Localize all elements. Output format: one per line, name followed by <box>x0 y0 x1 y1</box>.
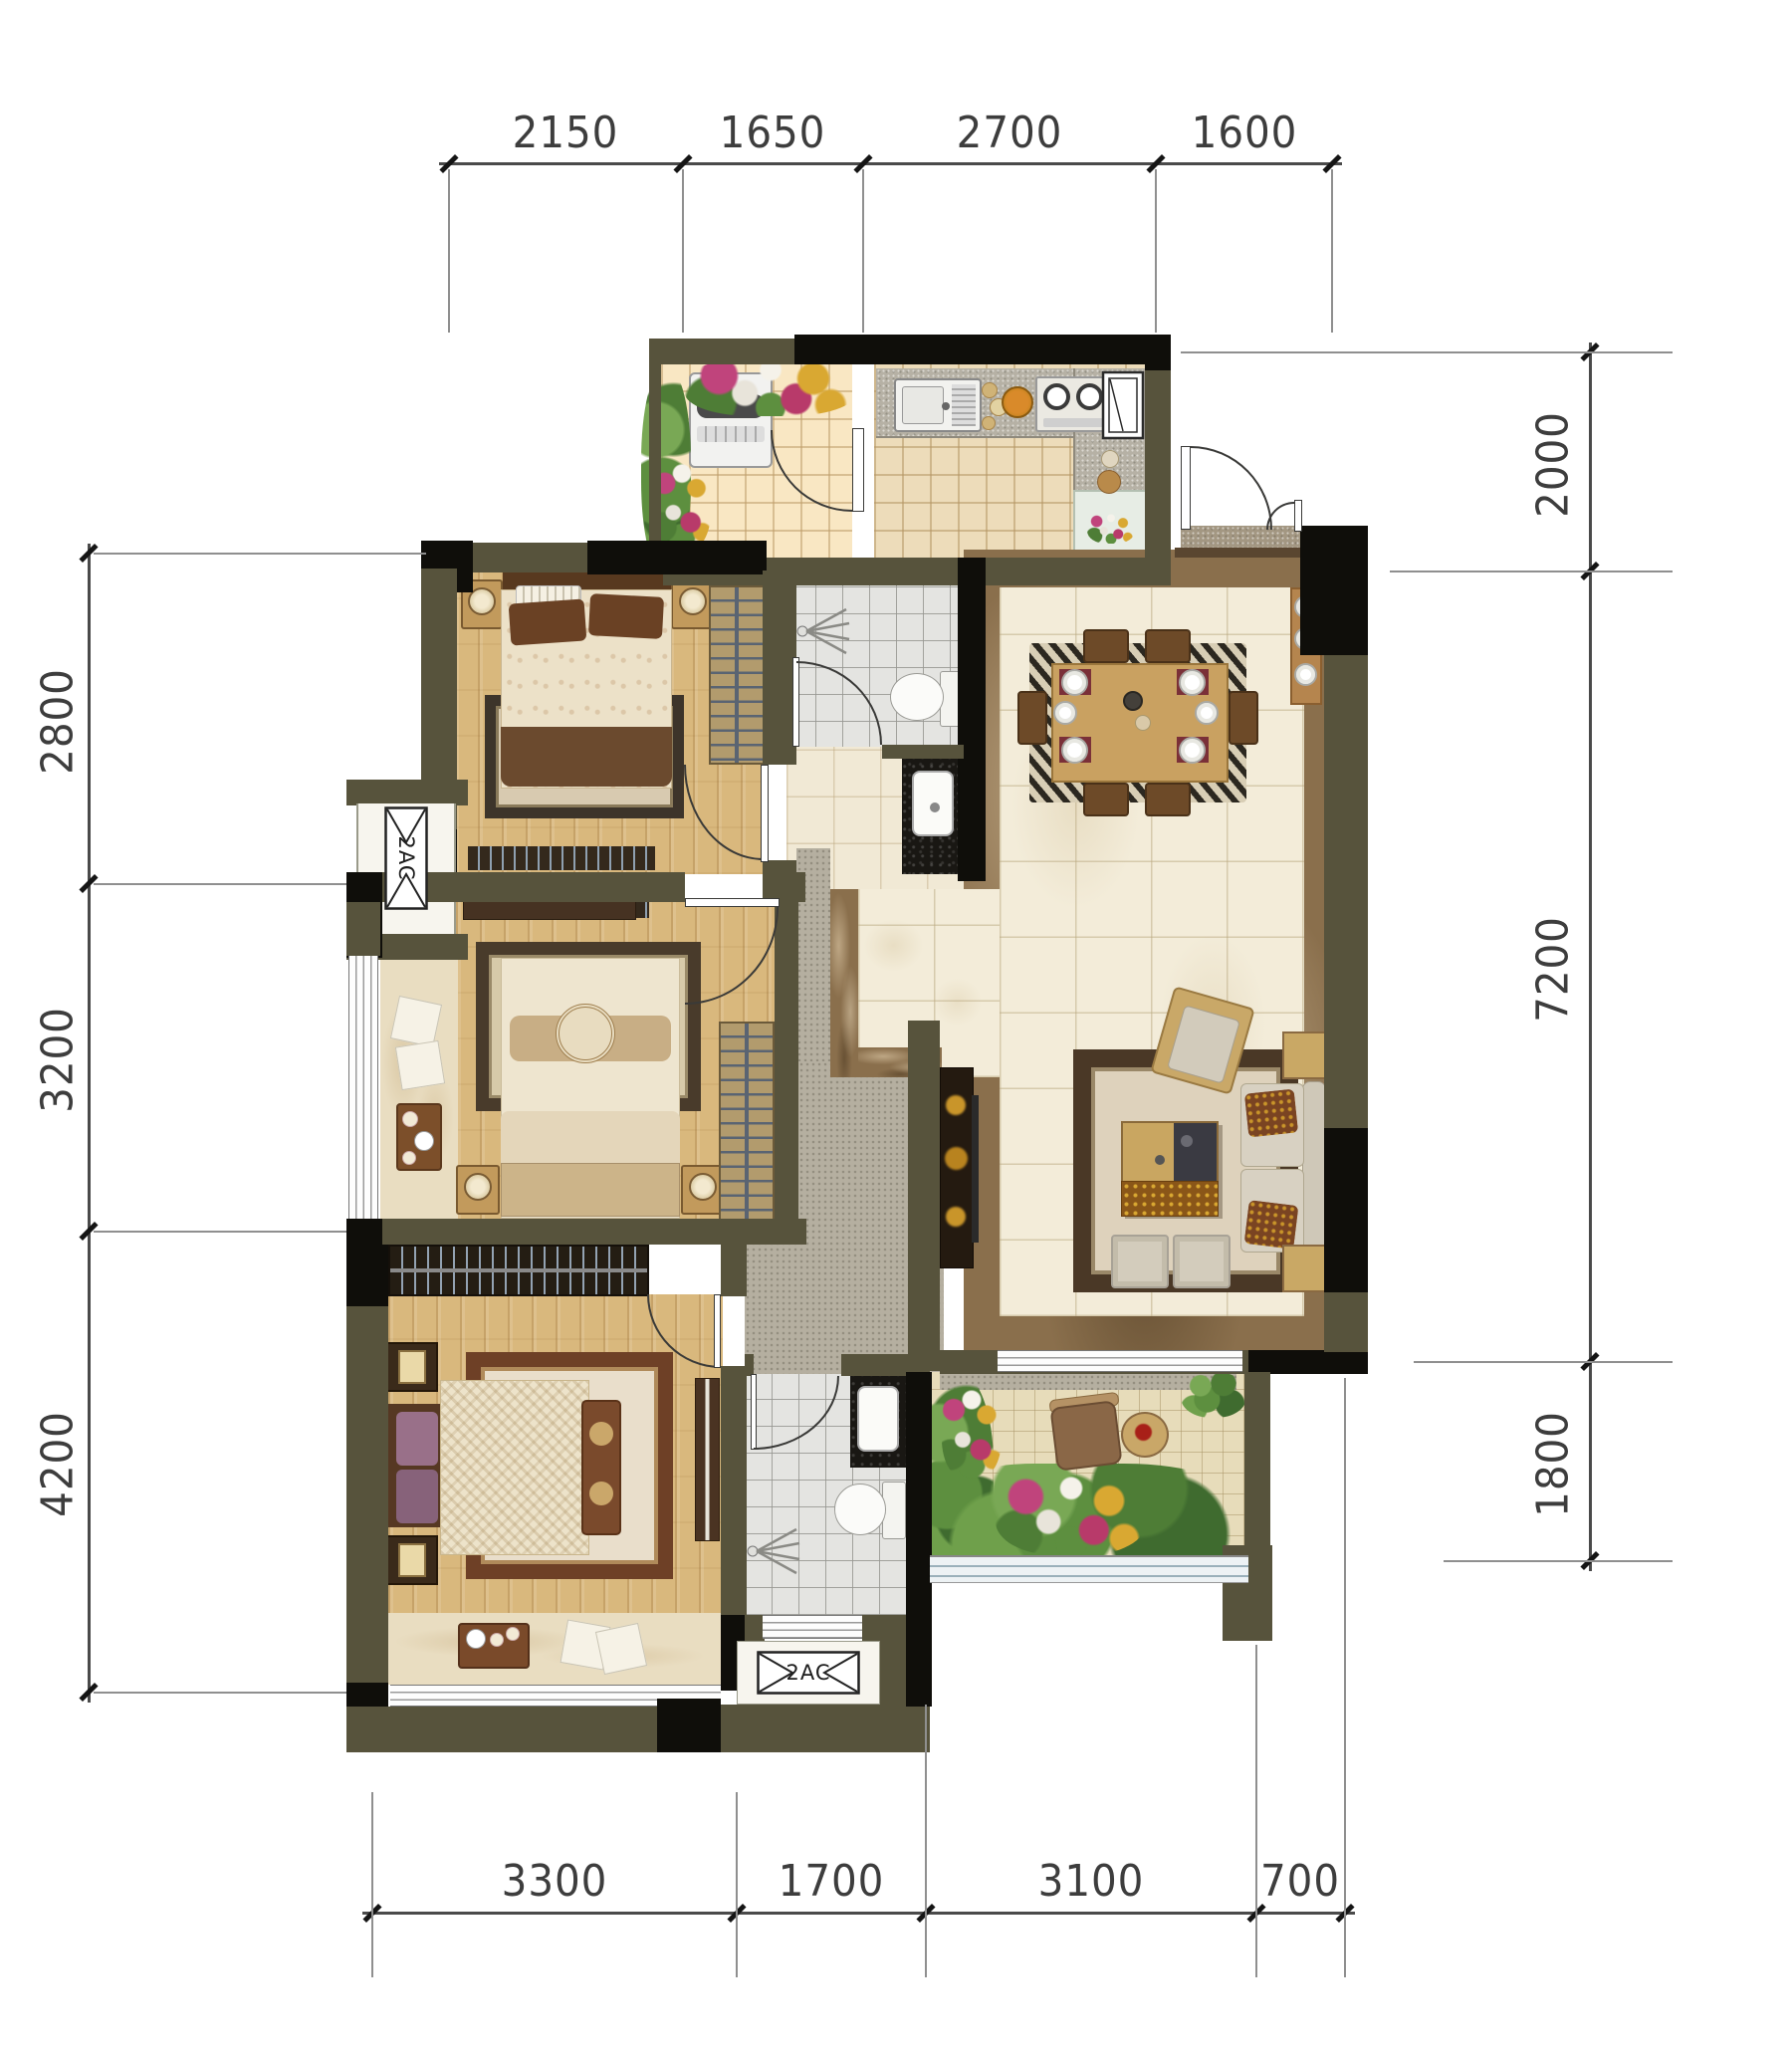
washer-controls <box>697 426 765 442</box>
dim-extension <box>94 883 346 885</box>
wall-segment <box>745 1615 765 1641</box>
dim-label: 7200 <box>1528 878 1579 1061</box>
kitchen-door-leaf <box>852 428 864 512</box>
burner-icon <box>1043 383 1070 410</box>
wall-segment <box>986 558 1147 585</box>
dim-label: 700 <box>1209 1856 1392 1907</box>
pillow-brown <box>588 593 664 639</box>
bench-cushion <box>589 1422 613 1446</box>
dim-label: 3200 <box>33 969 84 1152</box>
dim-label: 2150 <box>474 108 657 158</box>
dim-extension <box>1444 1560 1673 1562</box>
bedroom3-right-wall <box>721 1366 747 1615</box>
column <box>587 541 767 574</box>
column <box>958 558 986 881</box>
lamp-icon <box>464 1173 492 1201</box>
plate <box>1061 669 1088 696</box>
tv-console-decor <box>945 1147 968 1170</box>
wall-segment <box>862 1615 908 1641</box>
dim-line-left <box>88 544 91 1703</box>
shower-icon <box>794 601 852 659</box>
entry-door-arc-small <box>1266 502 1294 530</box>
wall-segment <box>745 1354 754 1376</box>
bay-cushion <box>390 996 442 1047</box>
table-decor <box>1155 1155 1165 1165</box>
plate <box>1053 701 1077 725</box>
dim-extension <box>1155 169 1157 333</box>
sofa-back <box>1302 1081 1326 1253</box>
dim-label: 1800 <box>1528 1373 1579 1556</box>
plate <box>1179 737 1206 764</box>
wall-segment <box>346 902 380 956</box>
flower-cluster <box>996 1472 1147 1555</box>
faucet-icon <box>930 802 940 812</box>
dining-chair <box>1083 629 1129 663</box>
entry-door-arc <box>1191 446 1272 530</box>
dining-chair <box>1229 691 1258 745</box>
dim-extension <box>862 169 864 333</box>
bedroom1-door-leaf <box>761 765 769 862</box>
plate <box>1061 737 1088 764</box>
side-table <box>1282 1245 1326 1292</box>
bench-cushion <box>589 1482 613 1505</box>
bay-cushion <box>595 1623 647 1675</box>
console-plate <box>1294 663 1317 686</box>
tv-console-decor <box>946 1207 966 1227</box>
lamp-icon <box>689 1173 717 1201</box>
dim-extension <box>94 553 426 555</box>
wall-segment <box>763 571 796 765</box>
plate <box>1179 669 1206 696</box>
wall-segment <box>649 362 661 562</box>
bedroom3-left-wall <box>346 1306 388 1683</box>
ac-unit-bottom: 2AC <box>757 1651 860 1695</box>
centerpiece <box>1135 715 1151 731</box>
tea-pot <box>466 1629 486 1649</box>
dim-label: 4200 <box>33 1373 84 1556</box>
bathroom2-window <box>763 1615 864 1639</box>
pillow-purple <box>396 1470 438 1523</box>
bedroom3-closet <box>388 1245 649 1296</box>
dining-chair <box>1145 629 1191 663</box>
wall-segment <box>788 745 796 759</box>
dining-chair <box>1017 691 1047 745</box>
dim-label: 3100 <box>1000 1856 1183 1907</box>
toilet-bowl <box>890 673 944 721</box>
column <box>346 1245 388 1306</box>
bedroom3-bed <box>440 1380 589 1555</box>
bedroom2-bay-seat <box>380 954 458 1225</box>
pillow-brown <box>509 598 587 645</box>
tea-cup <box>402 1151 416 1165</box>
bedroom3-bay-sill <box>388 1613 723 1685</box>
red-flower <box>1135 1424 1152 1441</box>
sofa-pillow <box>1244 1200 1299 1250</box>
bed-sheet-fold <box>501 1111 680 1171</box>
ottoman <box>1173 1235 1231 1288</box>
balcony-glass-rail <box>930 1555 1248 1583</box>
dim-label: 1600 <box>1153 108 1336 158</box>
tea-cup <box>402 1111 418 1127</box>
dim-extension <box>94 1231 346 1233</box>
wall-segment <box>1145 370 1171 585</box>
tv-screen <box>972 1095 979 1243</box>
centerpiece <box>1123 691 1143 711</box>
dim-label: 1650 <box>681 108 864 158</box>
faucet-icon <box>942 402 950 410</box>
sofa-pillow <box>1244 1089 1298 1138</box>
bathroom2-basin <box>857 1386 899 1452</box>
right-outer-wall <box>1324 1292 1368 1352</box>
sink-drainboard <box>952 384 976 426</box>
bedroom2-headboard <box>501 1163 680 1217</box>
balcony-right-wall <box>1244 1372 1270 1553</box>
table-flowers <box>1087 512 1135 544</box>
bed-medallion <box>556 1004 615 1063</box>
dim-extension <box>448 169 450 333</box>
dim-extension <box>1181 351 1673 353</box>
bedroom1-wardrobe <box>709 585 765 765</box>
hall-border-west <box>830 889 858 1077</box>
dim-extension <box>925 1705 927 1977</box>
dining-chair <box>1145 783 1191 816</box>
dim-extension <box>94 1692 346 1694</box>
tv-console-decor <box>946 1095 966 1115</box>
pillow-purple <box>396 1412 438 1466</box>
column <box>1248 1350 1368 1374</box>
counter-bowl <box>1097 470 1121 494</box>
wall-segment <box>780 872 805 902</box>
dim-extension <box>1390 571 1673 572</box>
bedroom3-door-leaf <box>714 1294 721 1368</box>
counter-vase <box>1101 450 1119 468</box>
dim-label: 2700 <box>918 108 1101 158</box>
bedroom3-wardrobe <box>695 1378 720 1541</box>
lamp-icon <box>679 587 707 615</box>
column <box>906 1372 932 1707</box>
wall-segment <box>649 339 798 364</box>
ac-platform-cap <box>346 780 468 805</box>
wall-segment <box>882 745 964 759</box>
bed-end-bench <box>581 1400 621 1535</box>
shower-icon <box>745 1521 802 1579</box>
tea-cup <box>506 1627 520 1641</box>
bay-cushion <box>395 1040 445 1090</box>
bed-blanket-fold <box>501 727 672 787</box>
lounge-chair <box>1049 1400 1122 1472</box>
dim-label: 1700 <box>740 1856 923 1907</box>
dining-chair <box>1083 783 1129 816</box>
lamp-icon <box>398 1543 426 1577</box>
ac-label: 2AC <box>384 806 428 910</box>
lamp-icon <box>398 1350 426 1384</box>
side-table <box>1282 1031 1326 1079</box>
dim-label: 3300 <box>463 1856 646 1907</box>
sink-basin <box>902 386 944 424</box>
plate <box>1195 701 1219 725</box>
wall-shelf-slats <box>468 846 655 870</box>
dim-extension <box>371 1792 373 1977</box>
entry-step <box>1175 548 1310 558</box>
dim-extension <box>1255 1645 1257 1977</box>
right-outer-wall <box>1324 655 1368 1128</box>
entry-door-leaf-small <box>1294 500 1302 532</box>
column <box>1300 526 1368 655</box>
flower-cluster <box>653 454 711 552</box>
tea-cup <box>490 1633 504 1647</box>
dim-line-top <box>439 162 1342 165</box>
ottoman <box>1111 1235 1169 1288</box>
entry-door-leaf <box>1181 446 1191 530</box>
wall-segment <box>721 1705 930 1752</box>
dim-extension <box>682 169 684 333</box>
column <box>1324 1128 1368 1292</box>
column <box>657 1699 721 1752</box>
balcony-plants <box>1181 1372 1246 1418</box>
dim-extension <box>1414 1361 1673 1363</box>
ac-unit-left: 2AC <box>384 806 428 910</box>
kitchen-bowl <box>982 416 996 430</box>
dim-label: 2800 <box>33 630 84 813</box>
wall-segment <box>721 1245 747 1296</box>
dim-line-bottom <box>362 1912 1355 1915</box>
kitchen-bowl <box>982 382 998 398</box>
flower-bed <box>685 358 856 416</box>
burner-icon <box>1076 383 1103 410</box>
bedroom2-right-wall <box>775 902 798 1223</box>
dim-extension <box>1331 169 1333 333</box>
stove-controls <box>1043 418 1103 427</box>
bedroom2-door-leaf <box>685 898 780 907</box>
tea-pot <box>414 1131 434 1151</box>
floor-plan-canvas: 2AC 2AC 2150 1650 2700 1600 2800 3200 42… <box>0 0 1792 2056</box>
kitchen-window-icon <box>1101 370 1145 440</box>
column <box>794 335 1151 364</box>
dim-extension <box>736 1792 738 1977</box>
dim-line-right <box>1589 343 1592 1571</box>
toilet-bowl <box>834 1484 886 1535</box>
dim-label: 2000 <box>1528 373 1579 557</box>
tv-wall <box>908 1021 940 1371</box>
table-runner-gold <box>1121 1181 1219 1217</box>
ac-label: 2AC <box>757 1651 860 1695</box>
bedroom2-wardrobe <box>719 1022 775 1221</box>
bedroom2-bottom-wall <box>346 1219 806 1245</box>
living-south-window <box>998 1350 1242 1372</box>
flower-cluster <box>942 1380 1002 1480</box>
food-pan <box>1002 386 1033 418</box>
table-decor <box>1181 1135 1193 1147</box>
bedroom2-window <box>348 956 378 1223</box>
